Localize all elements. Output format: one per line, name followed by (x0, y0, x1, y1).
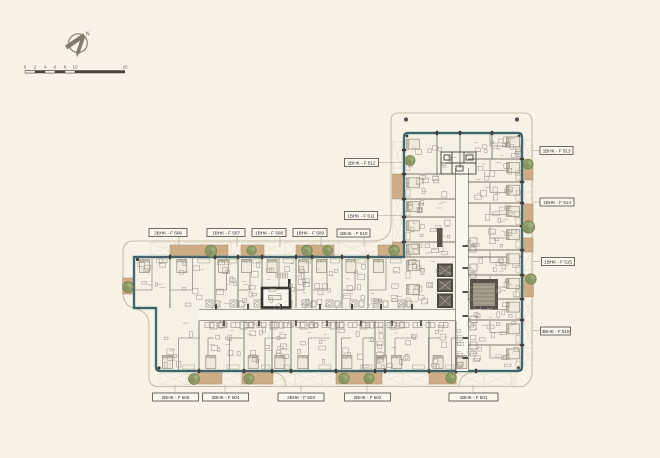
svg-text:20: 20 (122, 65, 128, 70)
svg-text:1BHK - F 508: 1BHK - F 508 (255, 230, 283, 236)
svg-text:1BHK - F 514: 1BHK - F 514 (543, 200, 571, 206)
svg-text:0: 0 (24, 65, 27, 70)
svg-text:1BHK - F 510: 1BHK - F 510 (340, 231, 368, 237)
svg-text:10: 10 (72, 65, 78, 70)
svg-text:2BHK - F 512: 2BHK - F 512 (348, 160, 376, 166)
svg-text:2: 2 (34, 65, 37, 70)
svg-text:1BHK - F 501: 1BHK - F 501 (460, 395, 488, 401)
svg-text:2BHK - F 506: 2BHK - F 506 (154, 230, 182, 236)
svg-text:2BHK - F 505: 2BHK - F 505 (162, 395, 190, 401)
svg-text:8: 8 (64, 65, 67, 70)
svg-text:N: N (86, 32, 90, 38)
svg-text:2BHK - F 503: 2BHK - F 503 (287, 395, 315, 401)
svg-text:6: 6 (54, 65, 57, 70)
svg-text:1BHK - F 509: 1BHK - F 509 (296, 230, 324, 236)
svg-text:2BHK - F 502: 2BHK - F 502 (354, 395, 382, 401)
svg-text:4: 4 (44, 65, 47, 70)
svg-text:1BHK - F 515: 1BHK - F 515 (544, 259, 572, 265)
svg-text:1BHK - F 511: 1BHK - F 511 (347, 213, 375, 219)
svg-text:2BHK - F 504: 2BHK - F 504 (212, 395, 240, 401)
svg-text:1BHK - F 513: 1BHK - F 513 (543, 148, 571, 154)
svg-text:1BHK - F 507: 1BHK - F 507 (212, 230, 240, 236)
svg-text:3BHK - F 516: 3BHK - F 516 (542, 329, 570, 335)
